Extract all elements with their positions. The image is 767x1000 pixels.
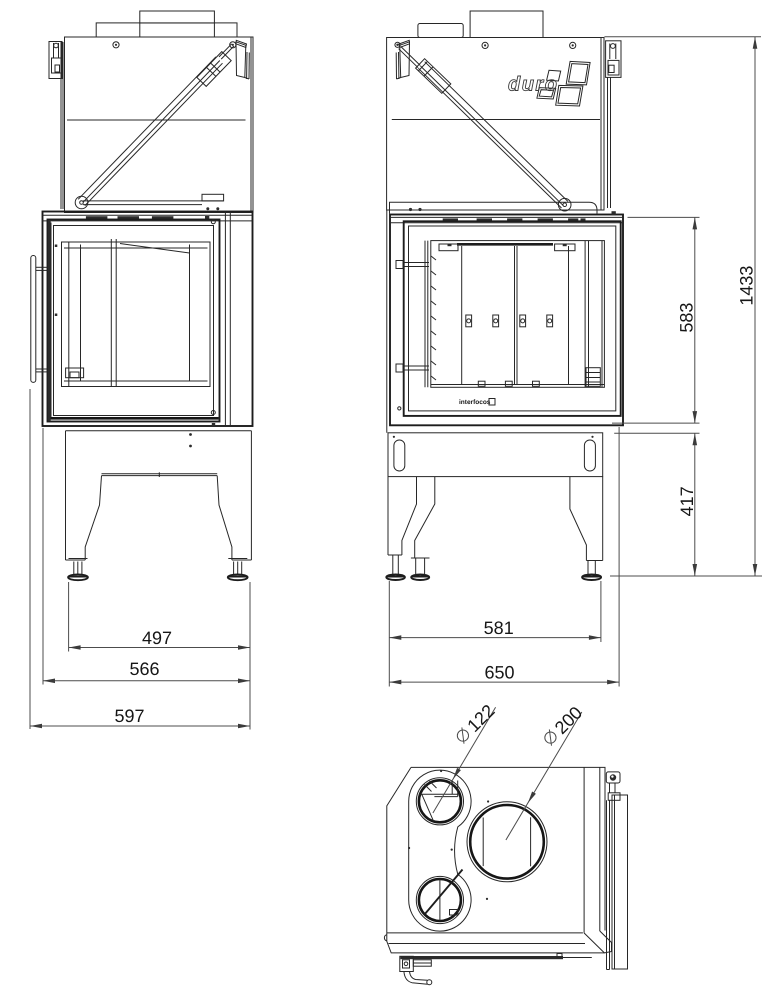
svg-text:duro: duro — [508, 74, 558, 96]
svg-text:interfocos: interfocos — [459, 399, 491, 406]
svg-text:650: 650 — [484, 663, 514, 683]
svg-text:1433: 1433 — [736, 266, 756, 306]
svg-text:583: 583 — [677, 303, 697, 333]
svg-text:417: 417 — [677, 486, 697, 516]
svg-text:581: 581 — [484, 618, 514, 638]
svg-text:566: 566 — [129, 659, 159, 679]
svg-text:597: 597 — [114, 706, 144, 726]
svg-text:497: 497 — [142, 628, 172, 648]
